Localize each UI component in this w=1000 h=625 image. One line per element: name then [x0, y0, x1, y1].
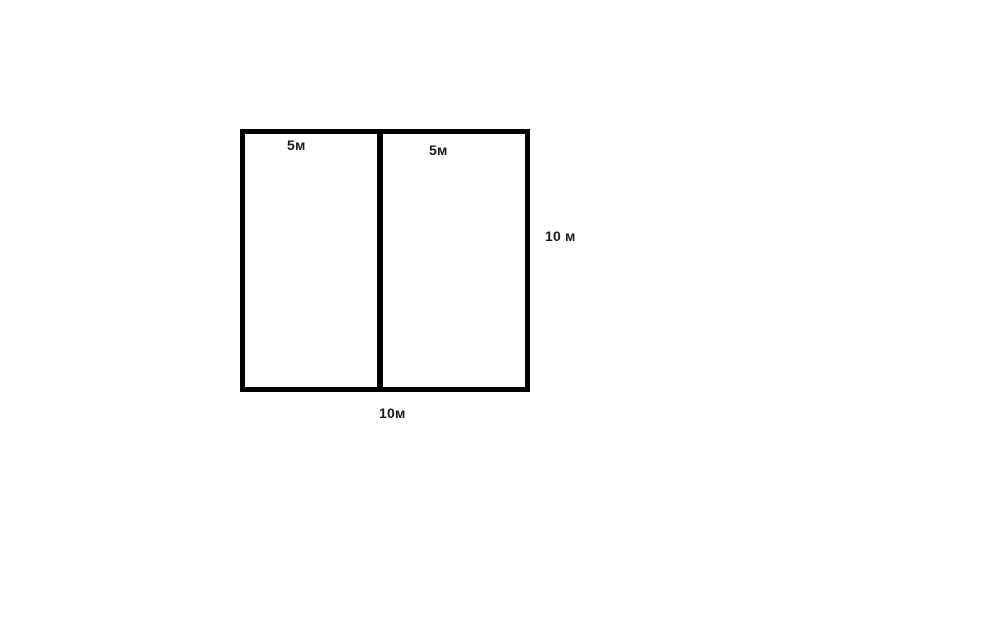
side-height-label: 10 м: [545, 228, 576, 244]
diagram-canvas: 5м 5м 10 м 10м: [0, 0, 1000, 625]
vertical-divider-line: [377, 129, 383, 392]
bottom-total-width-label: 10м: [379, 405, 406, 421]
outer-rectangle: [240, 129, 530, 392]
right-half-width-label: 5м: [429, 142, 448, 158]
left-half-width-label: 5м: [287, 137, 306, 153]
